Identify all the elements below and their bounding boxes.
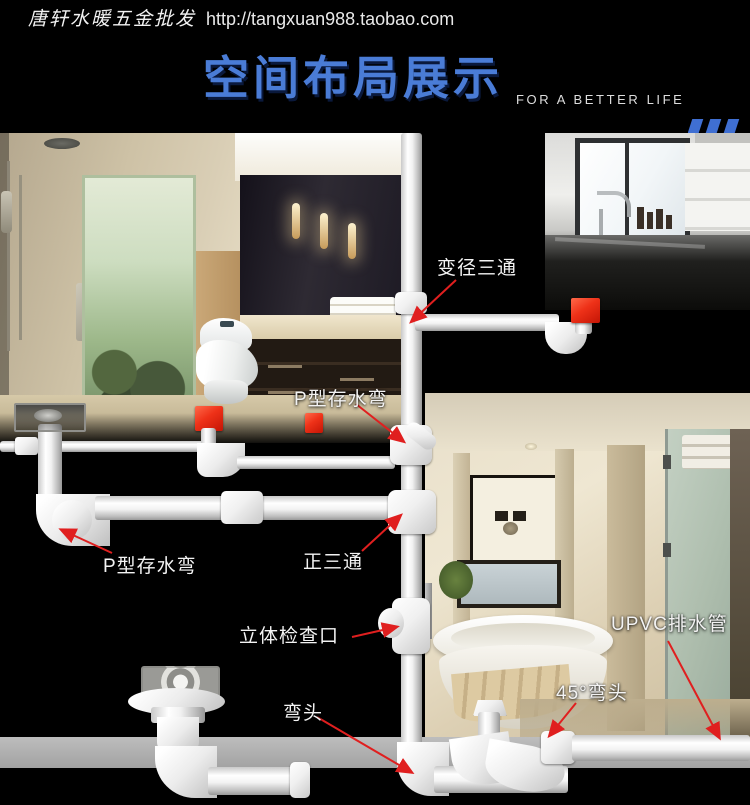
shower-hose xyxy=(19,175,22,340)
label-inspection-port: 立体检查口 xyxy=(239,621,339,648)
upvc-pipe-hub xyxy=(541,731,575,764)
header-bar: 唐轩水暖五金批发http://tangxuan988.taobao.com xyxy=(28,6,454,32)
partial-blue-logo xyxy=(688,119,742,133)
label-upvc-drain-pipe: UPVC排水管 xyxy=(611,609,728,636)
label-reducing-tee: 变径三通 xyxy=(437,253,517,280)
floor-drain-hub xyxy=(290,762,310,798)
dark-marble-column xyxy=(730,429,750,738)
pipe-coupling xyxy=(221,491,263,524)
window-mullion xyxy=(625,138,629,238)
recessed-light xyxy=(525,443,537,450)
store-name: 唐轩水暖五金批发 xyxy=(28,8,196,30)
tee-fitting xyxy=(388,490,436,534)
kitchen-window xyxy=(575,138,690,248)
label-straight-tee: 正三通 xyxy=(303,547,363,574)
logo-fragment xyxy=(688,119,703,133)
poster-canvas: 唐轩水暖五金批发http://tangxuan988.taobao.com 空间… xyxy=(0,0,750,805)
bottle xyxy=(637,207,644,229)
glass-hinge xyxy=(663,455,671,469)
banner-tagline: FOR A BETTER LIFE xyxy=(516,92,684,107)
banner-title: 空间布局展示 xyxy=(203,42,503,108)
wall-sconce xyxy=(503,522,518,535)
inspection-port-cap xyxy=(378,608,404,638)
toilet-branch-pipe xyxy=(237,456,395,469)
bottle xyxy=(656,209,663,229)
toilet-controls xyxy=(220,321,234,327)
plant xyxy=(439,561,473,599)
label-p-trap-lower: P型存水弯 xyxy=(103,551,197,578)
label-p-trap-upper: P型存水弯 xyxy=(294,384,388,411)
hand-shower xyxy=(1,191,12,233)
ceiling xyxy=(235,133,407,181)
thin-pipe-fitting xyxy=(15,437,38,455)
shower-hose xyxy=(7,161,10,351)
bottle xyxy=(666,215,672,229)
toilet xyxy=(196,318,258,404)
wall-sconce xyxy=(495,511,508,521)
logo-fragment xyxy=(724,119,740,133)
bottle xyxy=(647,212,653,229)
vanity-counter xyxy=(240,315,407,341)
wall-sconce xyxy=(513,511,526,521)
label-elbow-45: 45°弯头 xyxy=(556,678,628,705)
drawer-handle xyxy=(340,378,374,381)
kitchen-cabinets xyxy=(685,143,750,231)
red-cap-kitchen xyxy=(571,298,600,323)
faucet-stem xyxy=(599,209,603,237)
toilet-base xyxy=(204,380,248,404)
glass-hinge xyxy=(663,543,671,557)
drain-grate-center xyxy=(34,409,62,422)
drawer-handle xyxy=(268,365,302,368)
upvc-drain-pipe xyxy=(572,735,750,761)
stack-coupling xyxy=(395,292,427,314)
store-url: http://tangxuan988.taobao.com xyxy=(206,9,454,29)
shower-floor-drain xyxy=(14,403,86,432)
logo-fragment xyxy=(706,119,722,133)
photo-kitchen xyxy=(545,133,750,310)
sconce-light xyxy=(292,203,300,239)
shower-head xyxy=(44,138,80,149)
left-p-trap-bulge xyxy=(52,500,92,540)
kitchen-branch-pipe xyxy=(415,314,559,331)
label-elbow: 弯头 xyxy=(283,698,323,725)
counter-bottles xyxy=(637,203,677,229)
red-cap-small xyxy=(305,413,323,433)
sconce-light xyxy=(320,213,328,249)
sconce-light xyxy=(348,223,356,259)
